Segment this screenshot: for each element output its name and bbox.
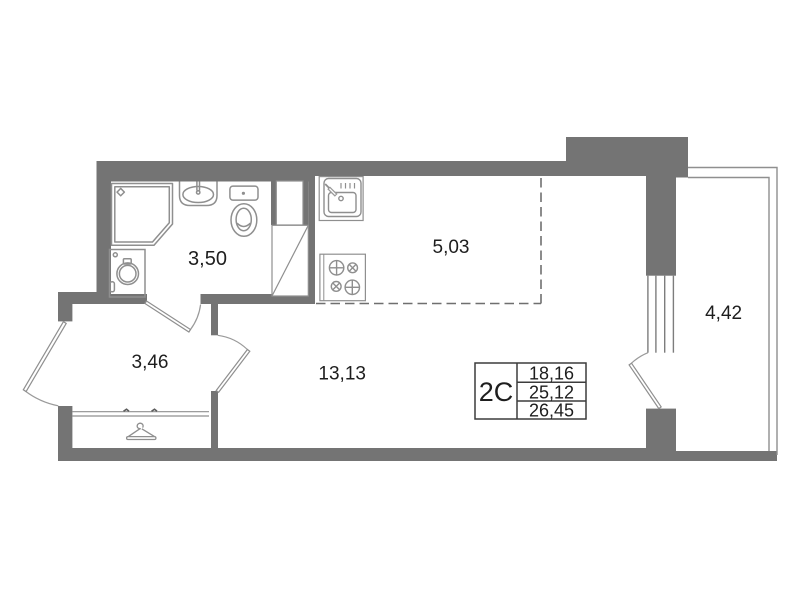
svg-text:13,13: 13,13 <box>318 363 366 384</box>
svg-text:3,46: 3,46 <box>132 352 169 373</box>
svg-text:4,42: 4,42 <box>705 303 742 324</box>
svg-text:25,12: 25,12 <box>529 382 574 402</box>
svg-text:26,45: 26,45 <box>529 401 574 421</box>
svg-text:2C: 2C <box>479 377 514 407</box>
svg-text:18,16: 18,16 <box>529 363 574 383</box>
svg-text:5,03: 5,03 <box>433 237 470 258</box>
svg-text:3,50: 3,50 <box>188 248 227 270</box>
